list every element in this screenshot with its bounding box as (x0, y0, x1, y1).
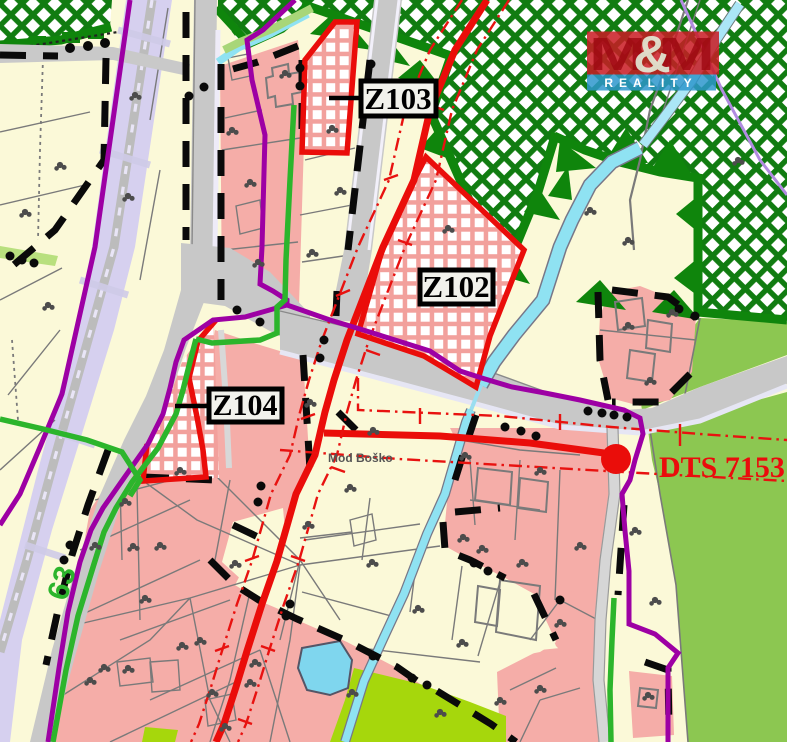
svg-text:DTS 7153: DTS 7153 (659, 451, 785, 484)
svg-text:Z103: Z103 (364, 81, 431, 116)
svg-text:REALITY: REALITY (604, 76, 697, 90)
svg-text:Mod Boško: Mod Boško (328, 451, 393, 465)
svg-text:Z102: Z102 (422, 269, 489, 304)
svg-text:Z104: Z104 (212, 389, 277, 422)
